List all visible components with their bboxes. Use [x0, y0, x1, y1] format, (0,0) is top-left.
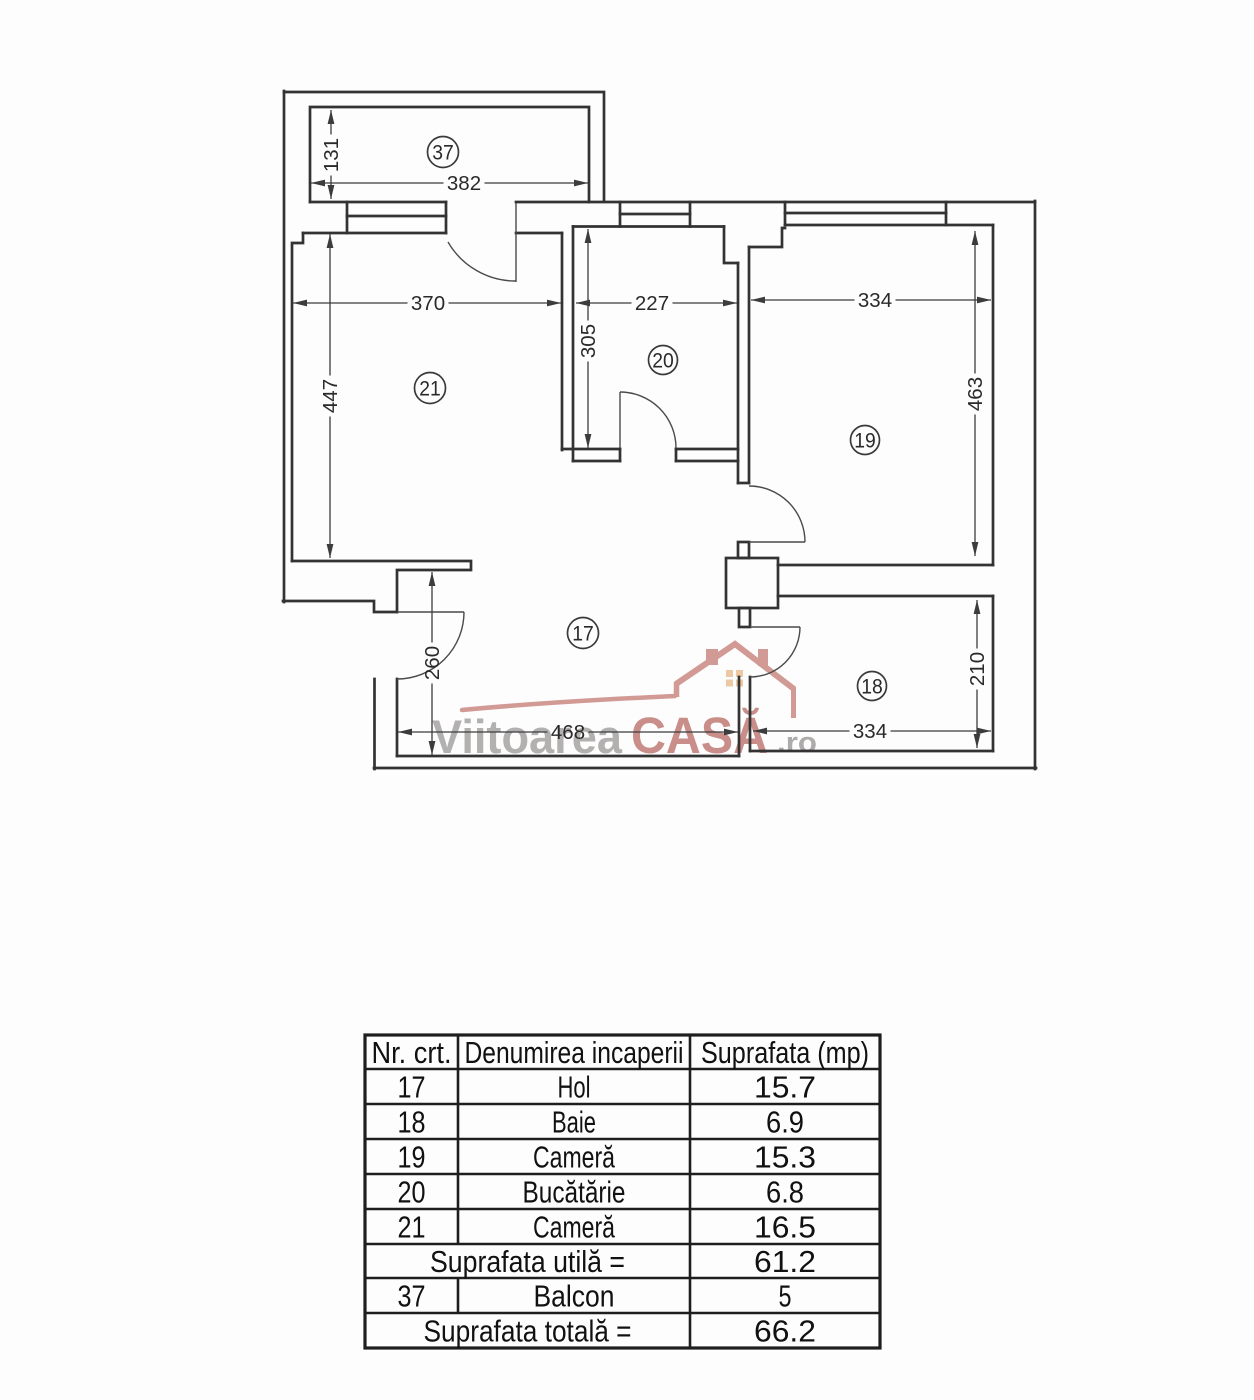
svg-text:37: 37	[432, 141, 454, 165]
svg-text:Balcon: Balcon	[534, 1279, 615, 1314]
svg-text:Suprafata (mp): Suprafata (mp)	[701, 1035, 869, 1070]
svg-text:20: 20	[652, 349, 674, 373]
svg-text:Baie: Baie	[552, 1105, 596, 1140]
svg-text:463: 463	[964, 377, 987, 411]
svg-text:334: 334	[853, 720, 887, 743]
svg-text:Bucătărie: Bucătărie	[523, 1175, 626, 1210]
svg-text:21: 21	[419, 377, 441, 401]
svg-text:227: 227	[635, 292, 669, 315]
svg-text:305: 305	[577, 324, 600, 358]
svg-text:6.8: 6.8	[766, 1175, 804, 1210]
svg-text:6.9: 6.9	[766, 1105, 804, 1140]
svg-text:15.3: 15.3	[754, 1140, 816, 1175]
svg-text:66.2: 66.2	[754, 1314, 816, 1349]
svg-text:19: 19	[854, 429, 876, 453]
svg-text:5: 5	[779, 1279, 792, 1314]
svg-text:Denumirea incaperii: Denumirea incaperii	[465, 1035, 684, 1070]
svg-text:210: 210	[966, 652, 989, 686]
svg-text:19: 19	[398, 1140, 426, 1175]
svg-text:Cameră: Cameră	[533, 1140, 616, 1175]
svg-text:447: 447	[319, 379, 342, 413]
svg-text:Suprafata utilă =: Suprafata utilă =	[430, 1244, 625, 1279]
svg-text:18: 18	[861, 675, 883, 699]
svg-text:15.7: 15.7	[754, 1070, 816, 1105]
svg-text:131: 131	[320, 138, 343, 172]
svg-text:370: 370	[411, 292, 445, 315]
svg-text:20: 20	[398, 1175, 426, 1210]
svg-text:17: 17	[398, 1070, 426, 1105]
svg-text:468: 468	[551, 721, 585, 744]
svg-text:Suprafata totală =: Suprafata totală =	[424, 1314, 632, 1349]
svg-text:334: 334	[858, 289, 892, 312]
svg-text:18: 18	[398, 1105, 426, 1140]
svg-text:.ro: .ro	[777, 727, 817, 759]
svg-text:Cameră: Cameră	[533, 1210, 616, 1245]
svg-text:21: 21	[398, 1210, 426, 1245]
svg-text:Hol: Hol	[558, 1070, 591, 1105]
svg-text:37: 37	[398, 1279, 426, 1314]
svg-text:61.2: 61.2	[754, 1244, 816, 1279]
svg-text:260: 260	[421, 646, 444, 680]
svg-text:382: 382	[447, 172, 481, 195]
svg-text:Nr. crt.: Nr. crt.	[372, 1035, 452, 1070]
svg-text:16.5: 16.5	[754, 1210, 816, 1245]
svg-text:17: 17	[572, 622, 594, 646]
